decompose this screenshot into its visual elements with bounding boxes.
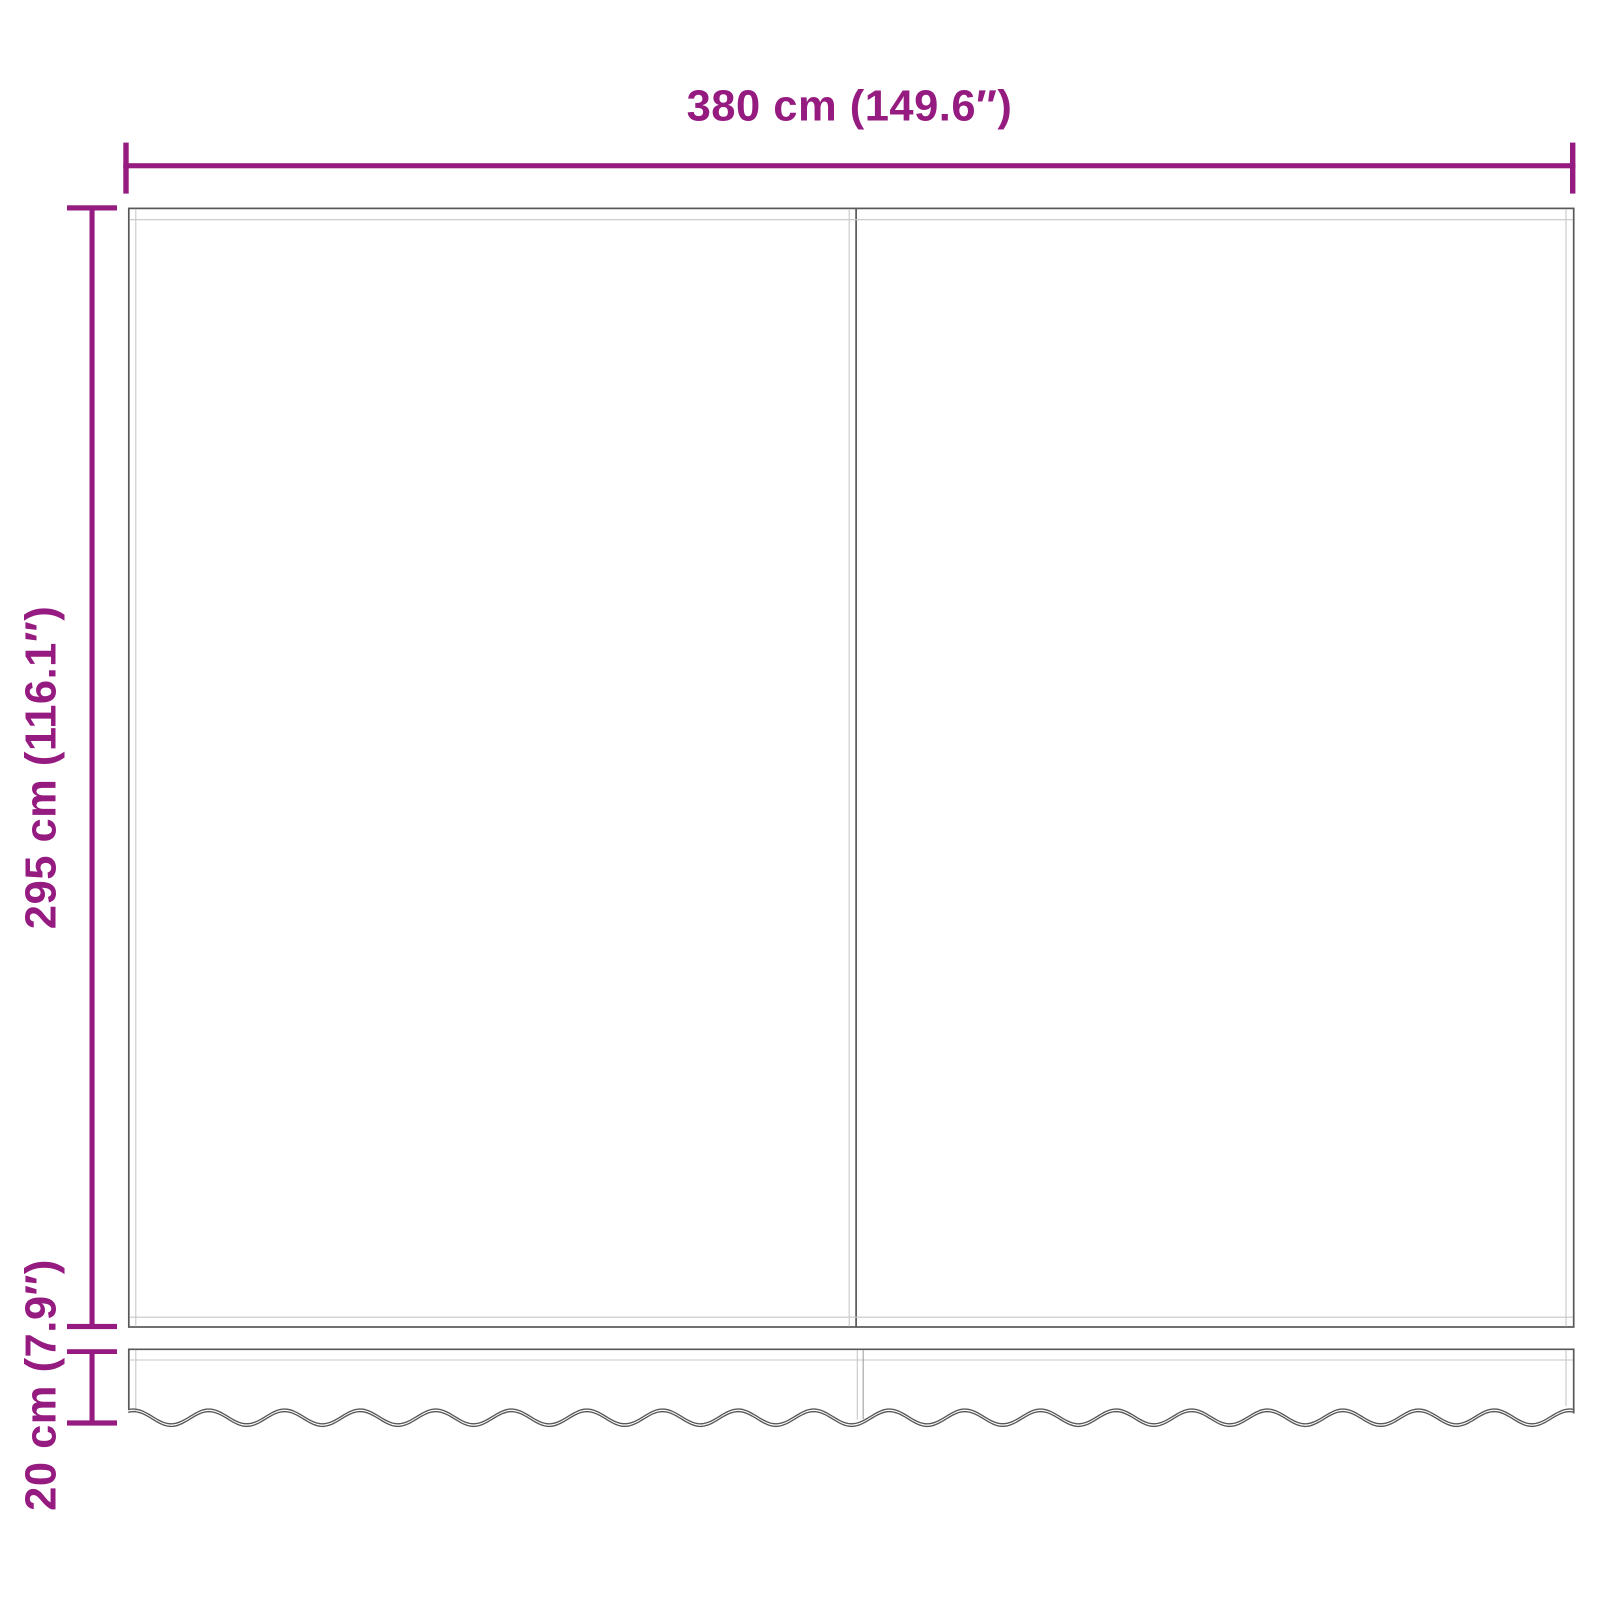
svg-text:295 cm (116.1″): 295 cm (116.1″) bbox=[17, 606, 65, 929]
svg-text:20 cm (7.9″): 20 cm (7.9″) bbox=[18, 1259, 66, 1511]
svg-text:380 cm (149.6″): 380 cm (149.6″) bbox=[687, 83, 1013, 131]
